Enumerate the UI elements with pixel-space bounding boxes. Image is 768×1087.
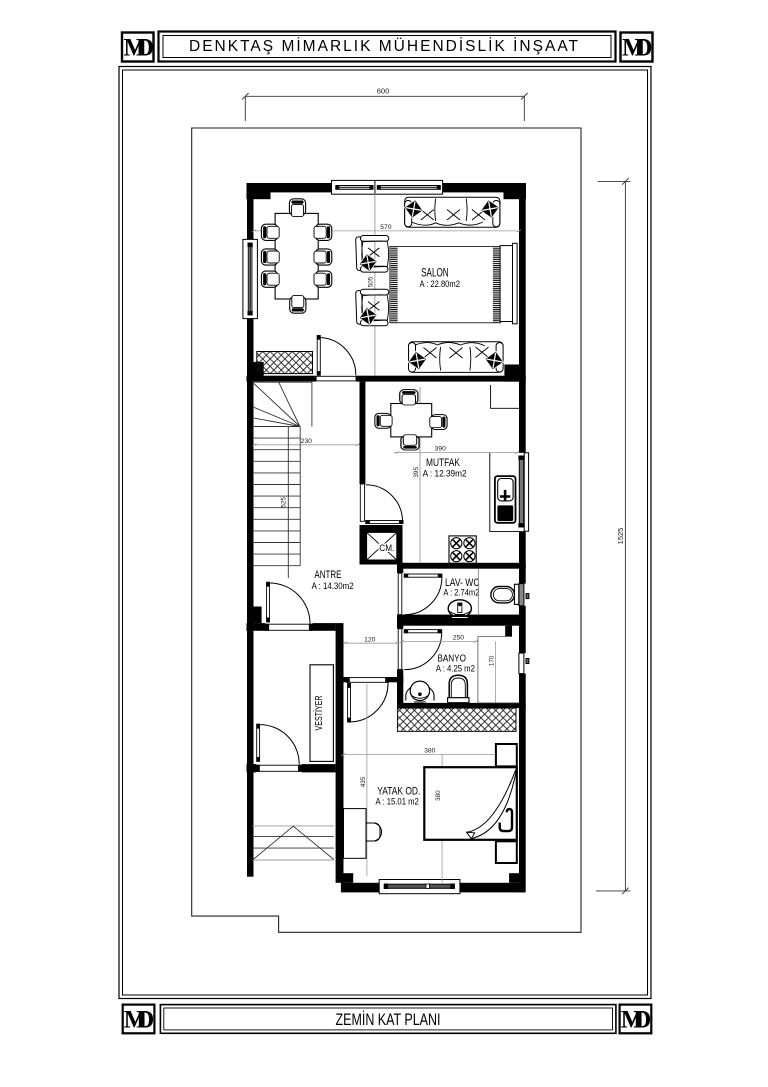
svg-text:ZEMİN KAT PLANI: ZEMİN KAT PLANI [336,1010,441,1029]
svg-text:D: D [633,1007,651,1034]
svg-text:435: 435 [360,776,367,787]
svg-text:A : 12.39m2: A : 12.39m2 [423,469,467,480]
svg-text:230: 230 [301,438,313,445]
svg-text:SALON: SALON [421,268,449,280]
svg-text:525: 525 [281,497,288,508]
svg-text:395: 395 [413,467,420,478]
svg-text:600: 600 [377,87,390,96]
svg-text:A : 2.74m2: A : 2.74m2 [443,588,479,598]
svg-text:A : 22.80m2: A : 22.80m2 [419,279,460,290]
svg-text:ANTRE: ANTRE [314,569,341,581]
svg-text:A : 14.30m2: A : 14.30m2 [312,581,354,592]
svg-text:A : 15.01 m2: A : 15.01 m2 [376,797,419,808]
svg-text:CM.: CM. [379,543,394,554]
svg-text:570: 570 [380,224,392,231]
svg-text:DENKTAŞ MİMARLIK MÜHENDİSLİK İ: DENKTAŞ MİMARLIK MÜHENDİSLİK İNŞAAT [189,37,579,55]
svg-text:D: D [635,35,653,62]
svg-text:VESTİYER: VESTİYER [312,696,325,731]
svg-text:505: 505 [368,276,375,287]
svg-text:390: 390 [435,446,447,453]
svg-text:A : 4.25 m2: A : 4.25 m2 [436,664,475,675]
svg-text:D: D [136,1007,154,1034]
svg-text:BANYO: BANYO [437,652,466,664]
svg-text:1525: 1525 [616,528,625,545]
svg-text:380: 380 [424,748,436,755]
svg-text:380: 380 [435,790,442,801]
svg-text:D: D [136,35,154,62]
svg-text:170: 170 [489,655,496,666]
svg-text:MUTFAK: MUTFAK [426,457,460,469]
svg-text:250: 250 [453,635,465,642]
svg-text:120: 120 [364,636,376,643]
